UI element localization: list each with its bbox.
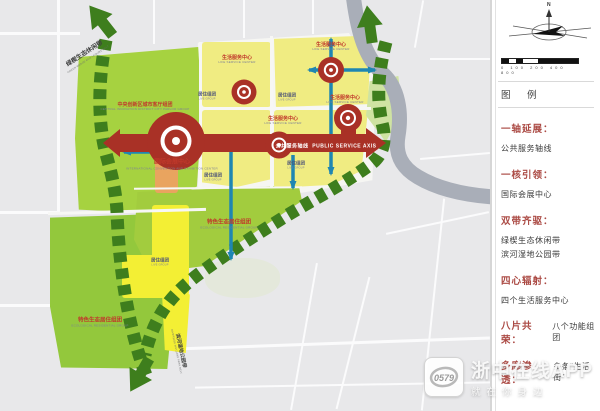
compass-rose: N [501,4,597,56]
watermark-zhezhong-app: 0579 浙中在线APP 就在你身边 [424,351,600,403]
label-live-group: 居住组团 LIVE GROUP [287,161,305,170]
legend-item-clusters: 八片共荣： 八个功能组团 [501,318,600,346]
divider [498,107,594,108]
label-live-group: 居住组团 LIVE GROUP [151,258,169,267]
legend-desc: 滨河湿地公园带 [501,249,600,260]
map-area: 生活服务中心 LIFE SERVICE CENTER 生活服务中心 LIFE S… [0,0,490,411]
road [414,0,424,48]
legend-desc: 四个生活服务中心 [501,295,600,306]
label-life-service-center: 生活服务中心 LIFE SERVICE CENTER [312,42,349,52]
scale-bar-blocks [501,58,579,64]
label-public-service-axis: 公共服务轴线 PUBLIC SERVICE AXIS [275,143,376,150]
road [153,0,155,44]
svg-text:0579: 0579 [434,373,454,383]
road [270,36,273,187]
legend-desc: 八个功能组团 [552,321,600,343]
road [386,211,489,235]
label-life-service-center: 生活服务中心 LIFE SERVICE CENTER [264,116,301,126]
label-life-service-center: 生活服务中心 LIFE SERVICE CENTER [326,95,363,105]
legend-item-core: 一核引领： 国际会展中心 [501,167,600,200]
watermark-text: 浙中在线APP 就在你身边 [471,356,593,398]
road [290,263,318,410]
road [420,152,490,160]
label-live-group: 居住组团 LIVE GROUP [204,173,222,182]
legend-term: 一核引领： [501,167,600,181]
legend-title: 图 例 [501,87,600,101]
road [312,0,314,34]
legend-item-centers: 四心辐射： 四个生活服务中心 [501,273,600,306]
road [0,304,52,307]
road [0,32,80,35]
road [430,58,490,60]
compass-graphic [501,4,597,56]
planning-map-screenshot: 生活服务中心 LIFE SERVICE CENTER 生活服务中心 LIFE S… [0,0,600,411]
app-logo-icon: 0579 [424,357,464,397]
legend-desc: 公共服务轴线 [501,143,600,154]
zone-wetland [205,258,280,298]
legend-term: 双带齐驱： [501,213,600,227]
road [200,107,371,110]
label-live-group: 居住组团 LIVE GROUP [278,93,296,102]
legend-term: 四心辐射： [501,273,600,287]
scale-bar: 0 100 200 400 800 [501,58,583,75]
zone-bright-yellow-block [122,255,178,298]
legend-item-axis: 一轴延展： 公共服务轴线 [501,121,600,154]
watermark-subtitle: 就在你身边 [471,384,593,398]
legend-term: 一轴延展： [501,121,600,135]
legend-term: 八片共荣： [501,318,550,346]
road [175,337,490,351]
legend-desc: 绿楔生态休闲带 [501,235,600,246]
label-life-service-center: 生活服务中心 LIFE SERVICE CENTER [218,55,255,65]
label-eco-residential-group: 特色生态居住组团 ECOLOGICAL RESIDENTIAL GROUP [71,318,128,329]
watermark-title: 浙中在线APP [471,356,593,383]
legend-panel: N 0 100 200 400 800 图 例 一轴延展： 公共服务轴线 [490,0,600,411]
label-central-innovation-group: 中央创新区城市客厅组团 CENTRAL INNOVATION DISTRICT … [101,102,190,112]
road [243,0,245,38]
legend-desc: 国际会展中心 [501,189,600,200]
green-arrow-northwest [79,0,123,43]
label-eco-residential-group: 特色生态居住组团 ECOLOGICAL RESIDENTIAL GROUP [200,220,257,231]
divider [498,81,594,82]
scale-bar-ticks: 0 100 200 400 800 [501,65,583,75]
label-live-group: 居住组团 LIVE GROUP [198,92,216,101]
compass-north-label: N [547,2,551,8]
legend-item-belts: 双带齐驱： 绿楔生态休闲带 滨河湿地公园带 [501,213,600,260]
label-convention-center: 国际会展中心 INTERNATIONAL CONVENTION AND EXHI… [126,159,218,170]
